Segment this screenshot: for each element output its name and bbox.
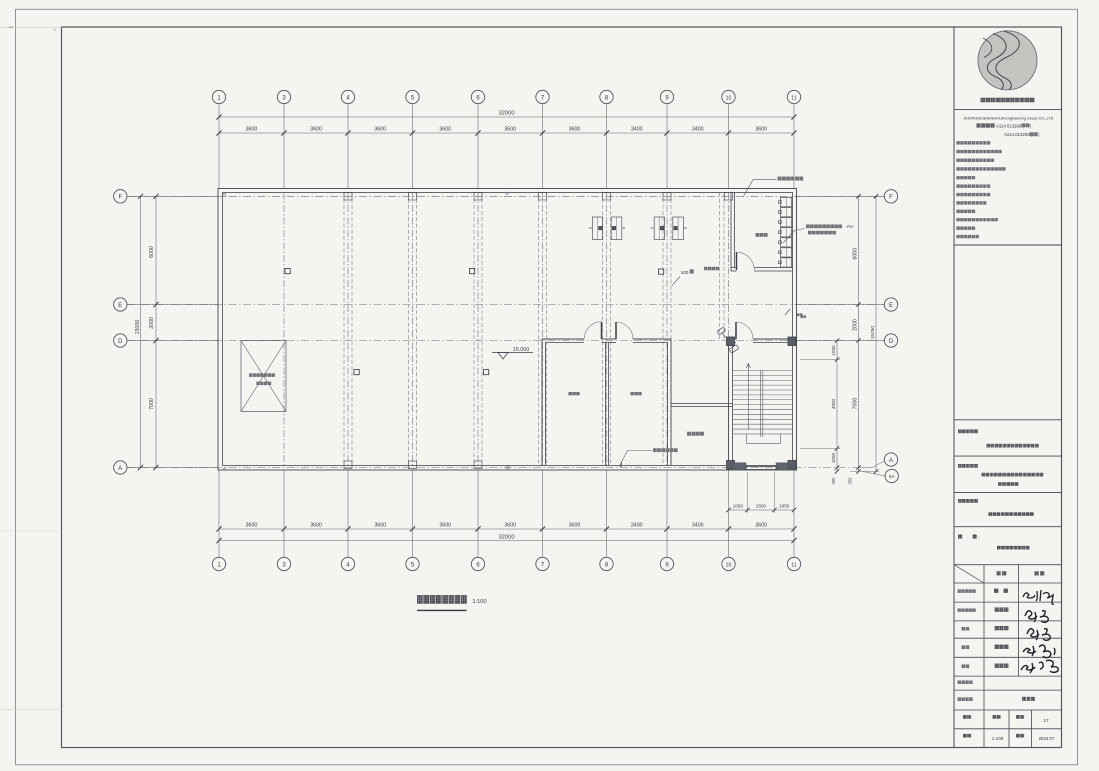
svg-text:E: E xyxy=(118,303,122,309)
svg-text:A114.013266 (: A114.013266 ( xyxy=(996,123,1024,128)
svg-text:3600: 3600 xyxy=(310,523,322,529)
svg-text:A: A xyxy=(889,458,893,464)
svg-text:1050: 1050 xyxy=(831,452,836,463)
svg-text:1500: 1500 xyxy=(756,504,767,509)
svg-text:F: F xyxy=(889,195,893,201)
svg-text:3400: 3400 xyxy=(631,127,643,133)
svg-text:1050: 1050 xyxy=(779,504,790,509)
svg-text:7000: 7000 xyxy=(853,398,859,410)
svg-text:3600: 3600 xyxy=(504,523,516,529)
svg-text:3600: 3600 xyxy=(569,127,581,133)
svg-text:3600: 3600 xyxy=(439,127,451,133)
svg-text:3600: 3600 xyxy=(439,523,451,529)
svg-text:1050: 1050 xyxy=(733,504,744,509)
svg-text:1050: 1050 xyxy=(831,345,836,356)
svg-text:ZHONGKESHENGHUA Engineering Gr: ZHONGKESHENGHUA Engineering Group CO.,LT… xyxy=(964,116,1054,120)
svg-text:250: 250 xyxy=(831,477,836,485)
svg-text:3600: 3600 xyxy=(569,523,581,529)
svg-text:500: 500 xyxy=(681,270,689,275)
svg-text:1:100: 1:100 xyxy=(992,736,1004,741)
svg-text:3600: 3600 xyxy=(504,127,516,133)
svg-text:10: 10 xyxy=(726,562,732,568)
svg-text:A: A xyxy=(118,466,122,472)
svg-text:3400: 3400 xyxy=(631,523,643,529)
svg-text:15000: 15000 xyxy=(135,320,141,335)
svg-text::: : xyxy=(978,535,979,540)
svg-text:11: 11 xyxy=(791,95,796,101)
svg-text:D: D xyxy=(889,339,894,345)
svg-text:32000: 32000 xyxy=(498,111,514,117)
svg-text:3400: 3400 xyxy=(692,127,704,133)
svg-text:E: E xyxy=(889,303,893,309)
svg-text:15.000: 15.000 xyxy=(513,347,530,353)
svg-text:3600: 3600 xyxy=(246,523,258,529)
svg-text:11: 11 xyxy=(791,562,796,568)
svg-text:2024.07: 2024.07 xyxy=(1039,736,1055,741)
svg-text:1:100: 1:100 xyxy=(472,599,486,605)
svg-text:2000: 2000 xyxy=(853,319,859,331)
svg-text:IP67: IP67 xyxy=(847,225,855,229)
svg-text:10: 10 xyxy=(726,95,732,101)
svg-text:4900: 4900 xyxy=(831,398,836,409)
svg-text:32000: 32000 xyxy=(498,534,514,540)
svg-text:250: 250 xyxy=(848,477,853,485)
svg-text:2000: 2000 xyxy=(149,317,155,329)
svg-text:7000: 7000 xyxy=(149,398,155,410)
svg-text:6000: 6000 xyxy=(149,246,155,258)
svg-text:3600: 3600 xyxy=(755,127,767,133)
svg-text:A214.013263 (: A214.013263 ( xyxy=(1004,132,1033,137)
svg-text:6000: 6000 xyxy=(853,248,859,260)
svg-text:3600: 3600 xyxy=(374,523,386,529)
svg-text:3600: 3600 xyxy=(310,127,322,133)
svg-text:0A: 0A xyxy=(889,474,896,480)
svg-text:F: F xyxy=(118,195,122,201)
svg-text:3600: 3600 xyxy=(374,127,386,133)
svg-text:17: 17 xyxy=(1043,718,1049,723)
svg-text:15250: 15250 xyxy=(870,326,876,340)
svg-text:3600: 3600 xyxy=(755,523,767,529)
svg-text:D: D xyxy=(118,339,123,345)
svg-text:3600: 3600 xyxy=(246,127,258,133)
svg-text:3400: 3400 xyxy=(692,523,704,529)
